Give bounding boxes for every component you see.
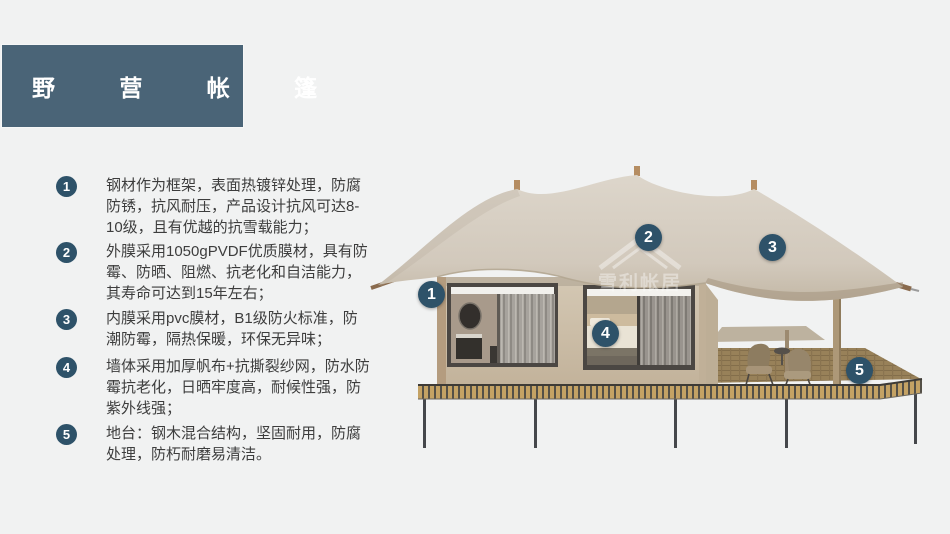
porch-deck [703,326,921,383]
feature-text-1: 钢材作为框架，表面热镀锌处理，防腐防锈，抗风耐压，产品设计抗风可达8-10级，且… [106,175,370,238]
feature-badge-3: 3 [56,309,77,330]
callout-5: 5 [846,357,873,384]
peak-pole-right [751,180,757,190]
sink [456,334,482,338]
cabin-corner-post-right [699,280,706,388]
callout-3: 3 [759,234,786,261]
cabin-side-wall [705,283,718,388]
peak-pole-center [634,166,640,176]
feature-item-4: 4 墙体采用加厚帆布+抗撕裂纱网，防水防霉抗老化，日晒牢度高，耐候性强，防紫外线… [56,356,370,419]
slide: 野 营 帐 篷 1 钢材作为框架，表面热镀锌处理，防腐防锈，抗风耐压，产品设计抗… [0,0,950,534]
window-blind [451,287,554,294]
curtain [639,296,691,365]
feature-badge-1: 1 [56,176,77,197]
window-bathroom [447,283,558,367]
feature-badge-4: 4 [56,357,77,378]
deck-legs [423,392,917,448]
porch-rug [710,326,825,342]
feature-badge-2: 2 [56,242,77,263]
callout-1: 1 [418,281,445,308]
feature-text-4: 墙体采用加厚帆布+抗撕裂纱网，防水防霉抗老化，日晒牢度高，耐候性强，防紫外线强； [106,356,370,419]
feature-text-2: 外膜采用1050gPVDF优质膜材，具有防霉、防晒、阻燃、抗老化和自洁能力，其寿… [106,241,370,304]
feature-item-1: 1 钢材作为框架，表面热镀锌处理，防腐防锈，抗风耐压，产品设计抗风可达8-10级… [56,175,370,238]
curtain [499,294,555,363]
feature-item-2: 2 外膜采用1050gPVDF优质膜材，具有防霉、防晒、阻燃、抗老化和自洁能力，… [56,241,370,304]
tent-svg: 雪利帐居 [370,150,950,470]
feature-item-3: 3 内膜采用pvc膜材，B1级防火标准，防潮防霉，隔热保暖，环保无异味； [56,308,370,350]
tent-illustration: 雪利帐居 [370,150,950,470]
title-block: 野 营 帐 篷 [2,45,243,127]
watermark-text: 雪利帐居 [598,271,682,294]
mirror [459,303,481,329]
page-title: 野 营 帐 篷 [2,69,346,103]
feature-item-5: 5 地台：钢木混合结构，坚固耐用，防腐处理，防朽耐磨易清洁。 [56,423,370,465]
callout-2: 2 [635,224,662,251]
feature-text-5: 地台：钢木混合结构，坚固耐用，防腐处理，防朽耐磨易清洁。 [106,423,370,465]
peak-pole-left [514,180,520,190]
feature-text-3: 内膜采用pvc膜材，B1级防火标准，防潮防霉，隔热保暖，环保无异味； [106,308,370,350]
feature-badge-5: 5 [56,424,77,445]
callout-4: 4 [592,320,619,347]
